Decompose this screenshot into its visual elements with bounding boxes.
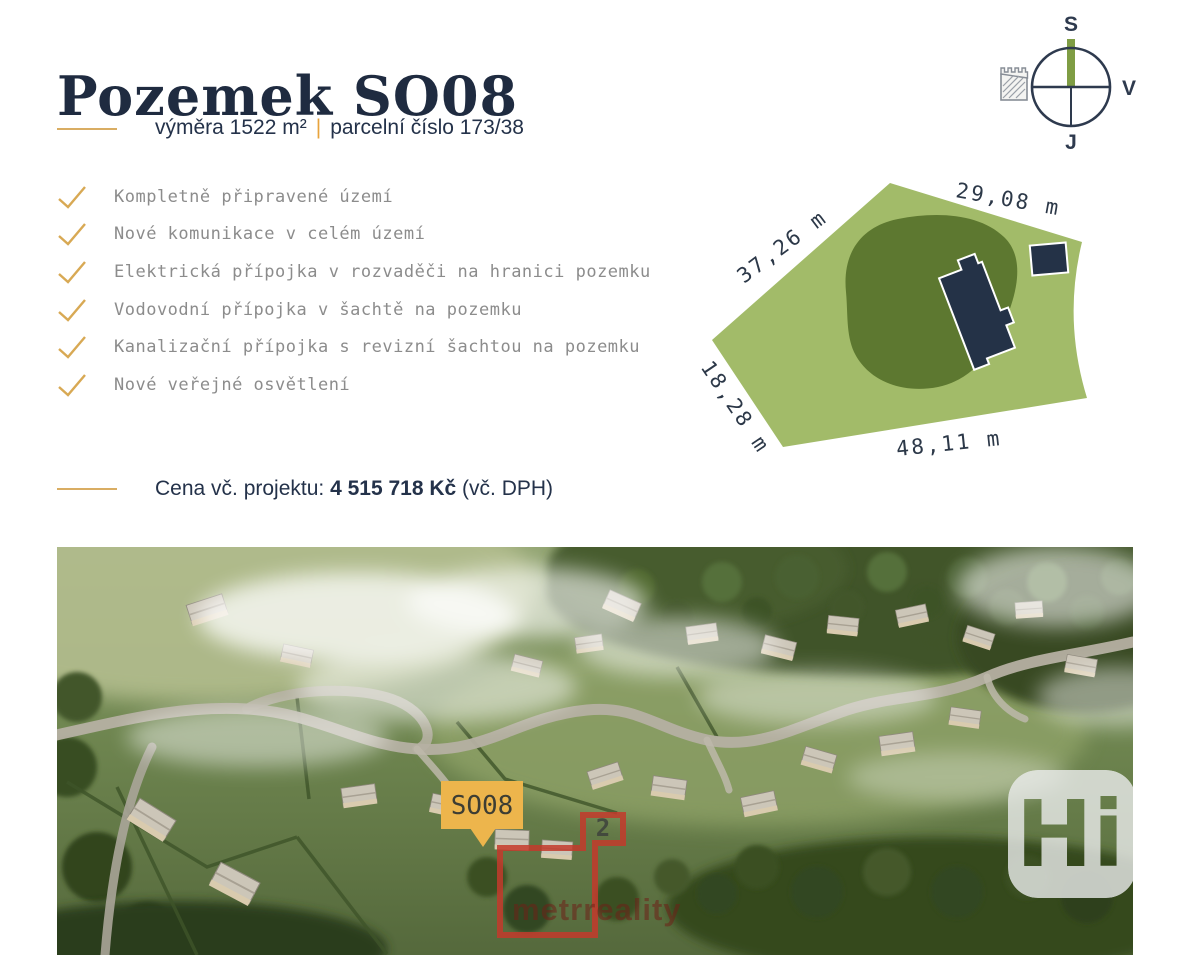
area-value: výměra 1522 m² bbox=[155, 116, 307, 139]
feature-text: Kanalizační přípojka s revizní šachtou n… bbox=[114, 337, 640, 357]
list-item: Kanalizační přípojka s revizní šachtou n… bbox=[57, 328, 651, 366]
feature-text: Nové veřejné osvětlení bbox=[114, 375, 350, 395]
subtitle-separator: | bbox=[316, 116, 321, 139]
zone-number: 2 bbox=[596, 814, 610, 842]
check-icon bbox=[57, 221, 87, 247]
list-item: Nové komunikace v celém území bbox=[57, 216, 651, 254]
price-suffix: (vč. DPH) bbox=[456, 477, 553, 500]
feature-text: Elektrická přípojka v rozvaděči na hrani… bbox=[114, 262, 651, 282]
check-icon bbox=[57, 184, 87, 210]
castle-icon bbox=[1001, 68, 1028, 100]
feature-text: Nové komunikace v celém území bbox=[114, 224, 425, 244]
check-icon bbox=[57, 297, 87, 323]
accent-dash bbox=[57, 128, 117, 130]
feature-list: Kompletně připravené území Nové komunika… bbox=[57, 178, 651, 404]
list-item: Nové veřejné osvětlení bbox=[57, 366, 651, 404]
dimension-bottom: 48,11 m bbox=[895, 426, 1003, 461]
list-item: Vodovodní přípojka v šachtě na pozemku bbox=[57, 291, 651, 329]
hi-logo bbox=[1008, 770, 1133, 898]
plot-marker-label: SO08 bbox=[451, 791, 514, 821]
list-item: Kompletně připravené území bbox=[57, 178, 651, 216]
check-icon bbox=[57, 259, 87, 285]
plot-diagram: 29,08 m 37,26 m 18,28 m 48,11 m bbox=[690, 150, 1140, 470]
land-listing-page: Pozemek SO08 S V J výměra 1522 m²|parcel… bbox=[0, 0, 1190, 955]
check-icon bbox=[57, 372, 87, 398]
compass-rose: S V J bbox=[995, 8, 1145, 158]
north-needle bbox=[1067, 39, 1075, 87]
feature-text: Kompletně připravené území bbox=[114, 187, 393, 207]
plot-subtitle: výměra 1522 m²|parcelní číslo 173/38 bbox=[155, 116, 524, 140]
garage-footprint bbox=[1030, 242, 1068, 275]
compass-east-label: V bbox=[1122, 77, 1136, 100]
list-item: Elektrická přípojka v rozvaděči na hrani… bbox=[57, 253, 651, 291]
price-prefix: Cena vč. projektu: bbox=[155, 477, 330, 500]
aerial-photo: Hi bbox=[57, 547, 1133, 955]
compass-north-label: S bbox=[1064, 13, 1078, 36]
price-amount: 4 515 718 Kč bbox=[330, 477, 456, 500]
check-icon bbox=[57, 334, 87, 360]
watermark-text: metrreality bbox=[512, 892, 682, 927]
price-line: Cena vč. projektu: 4 515 718 Kč (vč. DPH… bbox=[155, 477, 553, 501]
parcel-number: parcelní číslo 173/38 bbox=[330, 116, 524, 139]
feature-text: Vodovodní přípojka v šachtě na pozemku bbox=[114, 300, 522, 320]
accent-dash bbox=[57, 488, 117, 490]
